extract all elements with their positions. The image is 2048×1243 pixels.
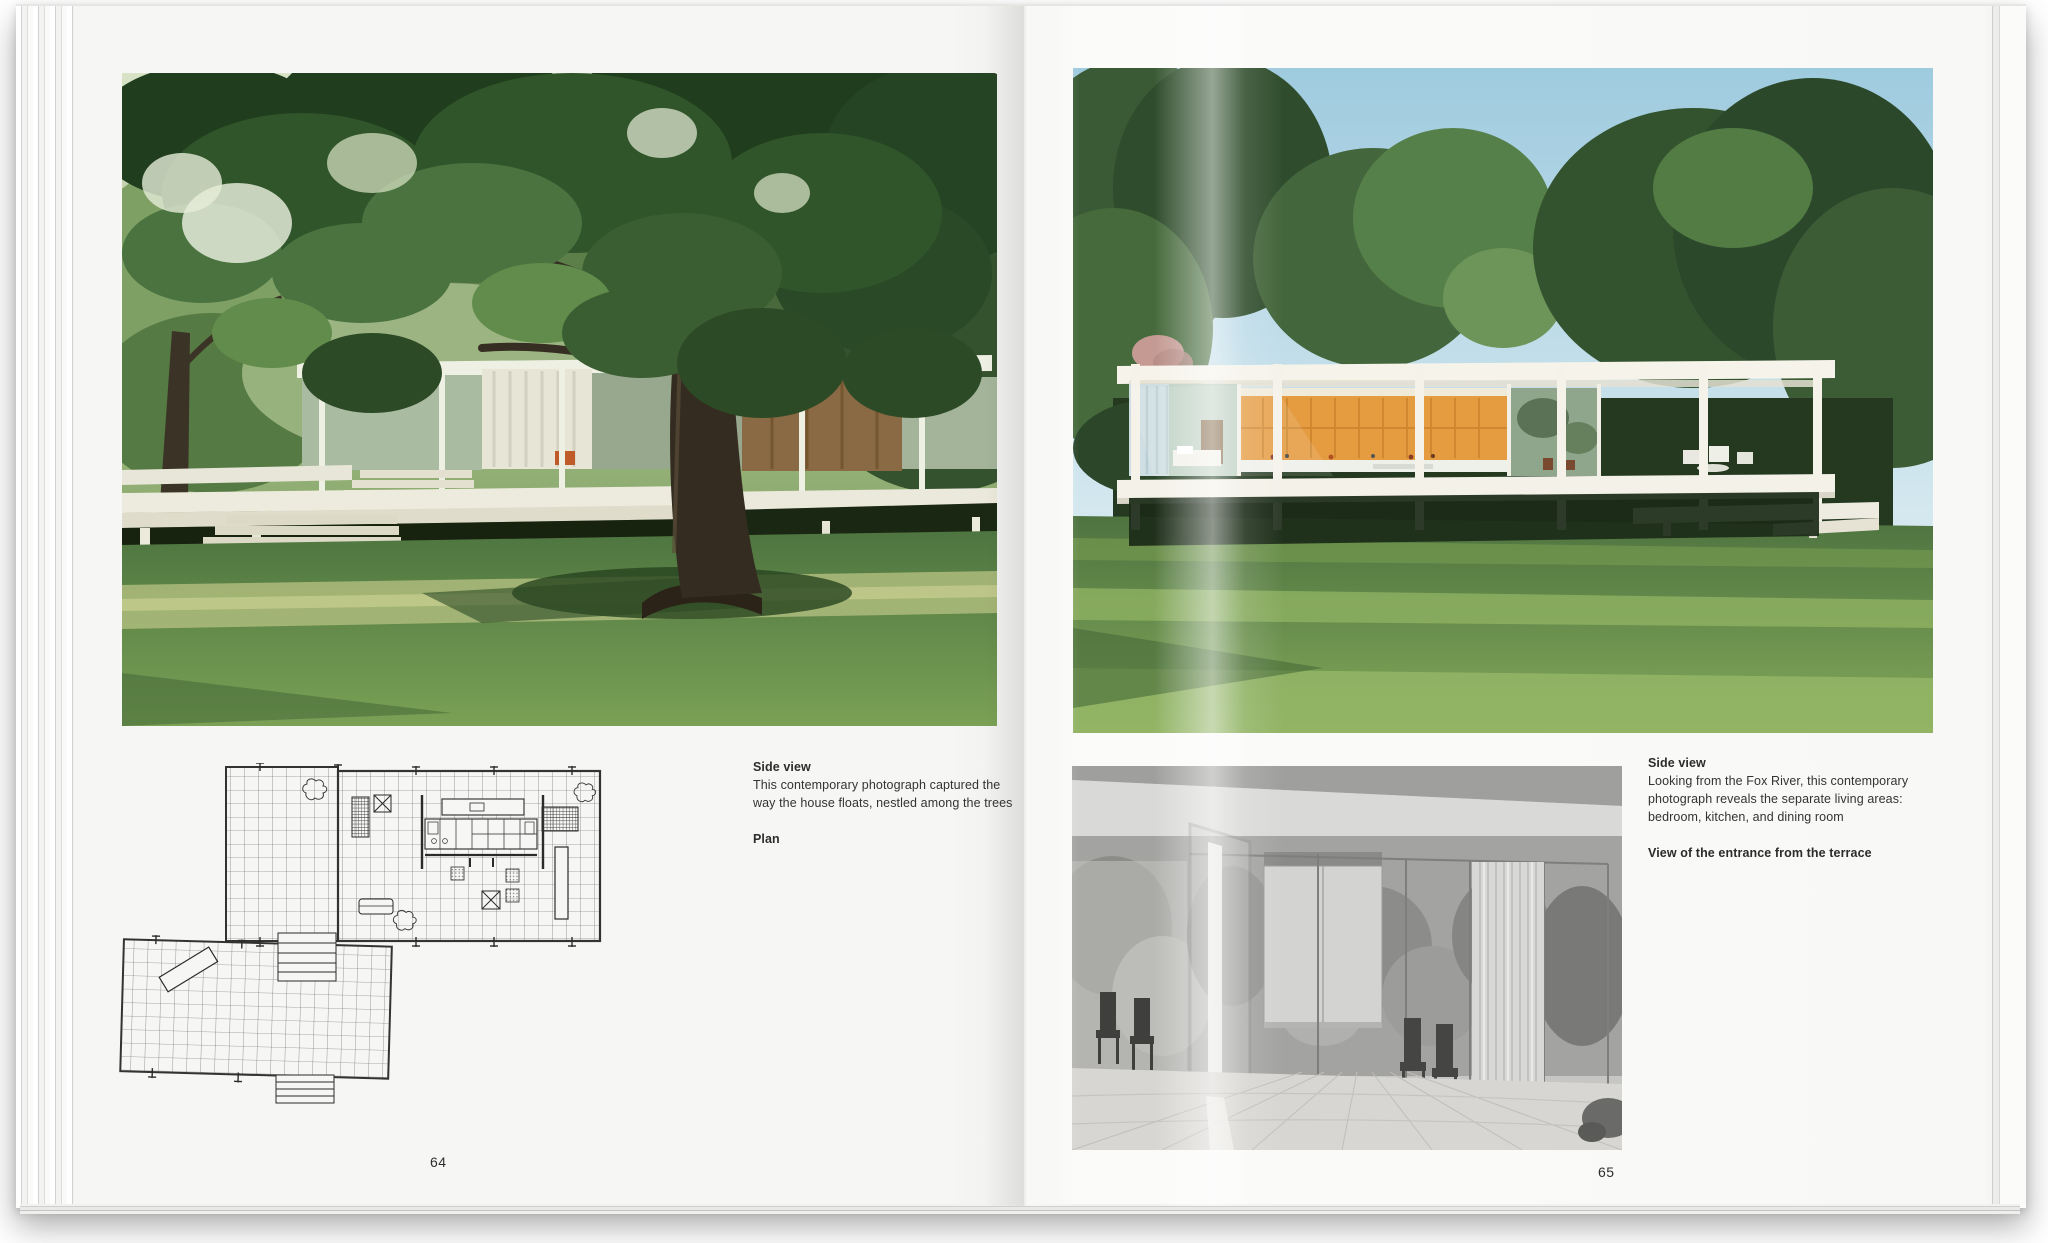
right-page-caption: Side view Looking from the Fox River, th…: [1648, 754, 1960, 862]
caption-title-plan: Plan: [753, 830, 1025, 848]
caption-body-line: Looking from the Fox River, this contemp…: [1648, 772, 1960, 790]
left-page-caption: Side view This contemporary photograph c…: [753, 758, 1025, 848]
left-page: Side view This contemporary photograph c…: [74, 6, 1024, 1206]
plan-steps-upper: [278, 933, 336, 981]
photo-bw-illustration: [1072, 766, 1622, 1150]
plan-house: [338, 771, 600, 941]
photo-left-illustration: [122, 73, 997, 726]
photo-farnsworth-house-among-trees: [122, 73, 997, 726]
plan-lower-terrace: [120, 934, 392, 1088]
floor-plan-drawing: [118, 763, 602, 1111]
book-fore-edge-left: [16, 6, 74, 1206]
page-number-65: 65: [1598, 1164, 1615, 1180]
book-spread-screenshot: Side view This contemporary photograph c…: [0, 0, 2048, 1243]
plan-steps-lower: [276, 1075, 334, 1103]
caption-body-line: bedroom, kitchen, and dining room: [1648, 808, 1960, 826]
caption-spacer: [1648, 826, 1960, 844]
curtain: [1472, 862, 1544, 1100]
photo-right-illustration: [1073, 68, 1933, 733]
book-bottom-page-edges: [20, 1204, 2020, 1214]
plan-upper-terrace: [226, 767, 338, 941]
floor-plan-svg: [118, 763, 602, 1111]
left-terrace-bay: [1072, 861, 1187, 1071]
right-page: Side view Looking from the Fox River, th…: [1024, 6, 1986, 1206]
caption-body-line: photograph reveals the separate living a…: [1648, 790, 1960, 808]
pivoted-glass-door: [1190, 824, 1250, 1112]
lawn: [122, 531, 997, 726]
open-book: Side view This contemporary photograph c…: [16, 4, 2026, 1208]
caption-body-line: way the house floats, nestled among the …: [753, 794, 1025, 812]
lawn: [1073, 516, 1933, 733]
photo-interior-entrance-terrace-bw: [1072, 766, 1622, 1150]
wardrobe-core: [1264, 852, 1382, 1028]
caption-title-side-view: Side view: [1648, 754, 1960, 772]
caption-title-entrance-view: View of the entrance from the terrace: [1648, 844, 1960, 862]
caption-body-line: This contemporary photograph captured th…: [753, 776, 1025, 794]
page-number-64: 64: [430, 1154, 447, 1170]
caption-title-side-view: Side view: [753, 758, 1025, 776]
book-fore-edge-right: [1986, 6, 2026, 1206]
photo-farnsworth-house-side-view: [1073, 68, 1933, 733]
caption-spacer: [753, 812, 1025, 830]
